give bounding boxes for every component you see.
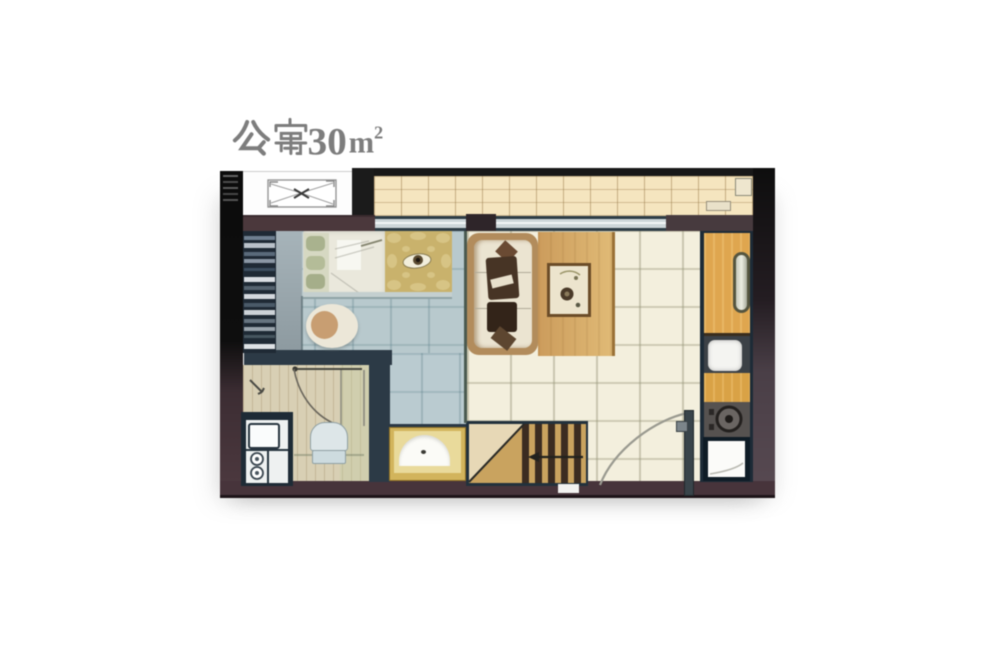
svg-text:2: 2 (374, 123, 383, 143)
svg-text:m: m (349, 126, 375, 157)
svg-text:30: 30 (308, 119, 347, 157)
